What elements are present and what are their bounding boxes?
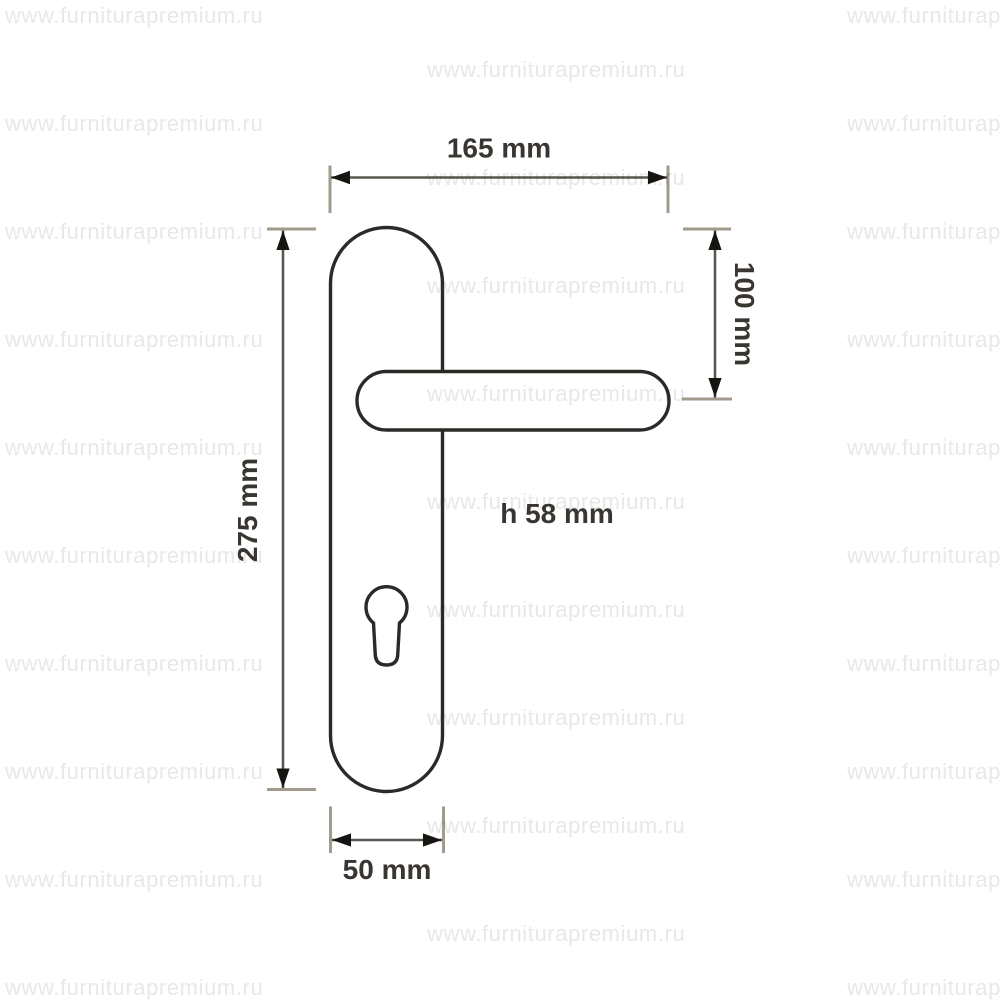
dim-overall-width: 165 mm (330, 133, 668, 214)
arrowhead-up (276, 231, 289, 251)
arrowhead-left (331, 171, 350, 184)
dim-top-to-handle: 100 mm (682, 229, 760, 399)
backplate-outline (331, 228, 443, 792)
handle-lever-outline (357, 372, 669, 431)
arrowhead-left (332, 833, 351, 846)
arrowhead-down (276, 769, 289, 789)
dimension-label-plate-width: 50 mm (343, 854, 432, 885)
dimension-label-handle-height: h 58 mm (500, 498, 614, 529)
arrowhead-down (708, 378, 721, 398)
dimension-label-top-to-handle: 100 mm (729, 262, 760, 366)
dimension-label-overall-width: 165 mm (447, 133, 551, 164)
door-handle-dimension-diagram: 165 mm 275 mm 100 mm 50 mm h 58 mm (0, 0, 1000, 1000)
arrowhead-right (648, 171, 667, 184)
dim-plate-width: 50 mm (331, 807, 444, 886)
dim-plate-height: 275 mm (232, 229, 316, 790)
arrowhead-up (708, 231, 721, 251)
dimension-label-plate-height: 275 mm (232, 458, 263, 562)
arrowhead-right (423, 833, 442, 846)
